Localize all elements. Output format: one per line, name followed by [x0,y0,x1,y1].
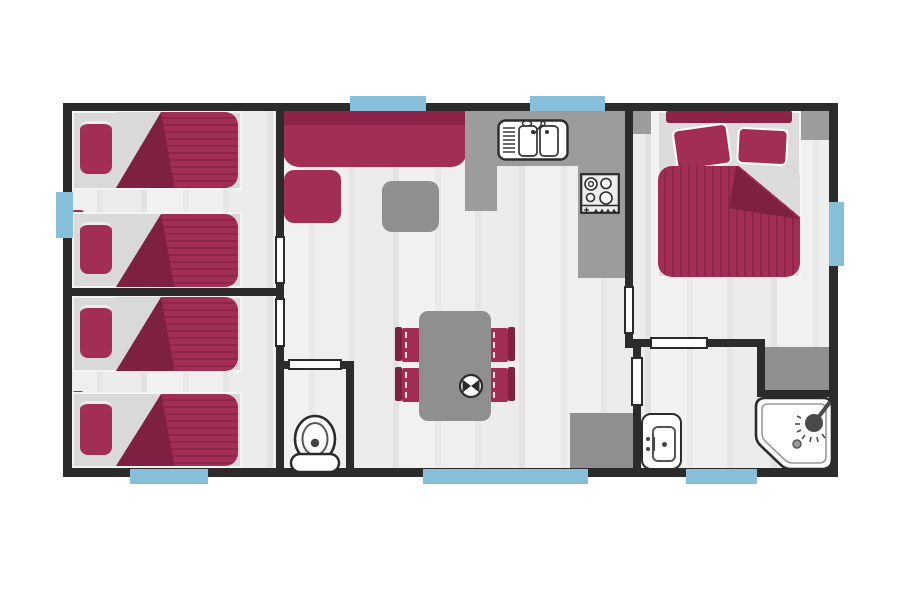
pillow-icon [80,305,112,358]
dining-table [419,311,491,421]
pillow-icon [80,222,112,274]
duvet-icon [116,112,238,188]
kitchen-sink-icon [497,119,569,161]
faucet-icon [645,437,655,451]
sofa-backrest [283,111,467,125]
nightstand [633,111,651,134]
dining-chair [402,368,420,402]
sliding-door [624,286,634,334]
chair-backrest [508,367,515,401]
sliding-door [650,337,708,349]
chair-backrest [395,327,402,361]
window [423,469,588,484]
duvet-icon [116,214,238,287]
wall [63,103,838,111]
window [530,96,605,111]
window [829,202,844,266]
duvet-icon [116,394,238,466]
floor-plan [0,0,900,600]
pillow-icon [671,122,732,171]
pillow-icon [80,121,112,174]
chair-backrest [395,367,402,401]
plate-cutlery-icon [458,373,484,399]
wall [346,361,354,477]
stove-icon [580,173,620,214]
duvet-icon [116,297,238,371]
sliding-door [275,236,285,284]
dining-chair [490,368,508,402]
wall [757,339,765,397]
window [56,192,73,238]
wall [276,103,284,477]
chair-backrest [508,327,515,361]
wardrobe [765,347,833,390]
window [130,469,208,484]
dining-chair [402,328,420,362]
tech-cabinet [570,413,637,468]
sliding-door [631,357,643,406]
drain-icon [662,442,667,447]
coffee-table [382,181,439,232]
kitchen-counter [465,160,497,211]
duvet-icon [658,166,800,277]
headboard [666,110,792,123]
window [350,96,426,111]
sliding-door [288,359,342,370]
washbasin [641,413,682,470]
sliding-door [275,298,285,347]
toilet-icon [288,414,342,474]
wall [63,288,284,296]
window [686,469,757,484]
pillow-icon [80,401,112,455]
dining-chair [490,328,508,362]
corner-shower-icon [754,396,834,472]
pillow-icon [736,127,789,167]
armchair [284,170,341,223]
